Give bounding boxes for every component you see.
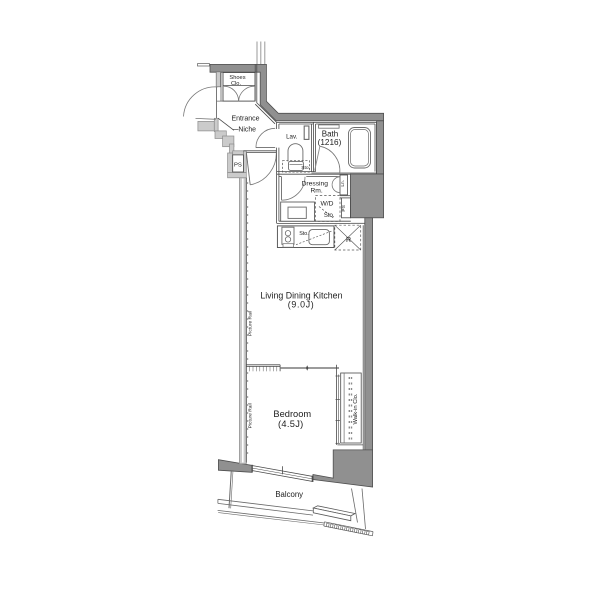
svg-text:R: R <box>346 237 351 244</box>
svg-text:(9.0J): (9.0J) <box>288 300 315 310</box>
svg-text:Niche: Niche <box>238 127 256 134</box>
svg-text:Sto.: Sto. <box>301 165 310 171</box>
svg-text:Bedroom: Bedroom <box>273 409 311 419</box>
svg-text:Picture Rail: Picture Rail <box>247 403 253 428</box>
svg-text:Lav.: Lav. <box>286 134 298 141</box>
svg-text:(1216): (1216) <box>318 138 342 147</box>
svg-text:Ln.: Ln. <box>340 180 345 187</box>
svg-text:Entrance: Entrance <box>231 115 259 122</box>
svg-text:Clo.: Clo. <box>231 81 242 87</box>
svg-text:PS: PS <box>341 204 347 211</box>
svg-text:Walk-in Clo.: Walk-in Clo. <box>353 393 359 424</box>
svg-text:Sto.: Sto. <box>324 213 335 219</box>
svg-text:Picture Rail: Picture Rail <box>247 311 253 336</box>
svg-text:Balcony: Balcony <box>275 490 303 499</box>
svg-text:PS: PS <box>234 162 242 168</box>
svg-text:(4.5J): (4.5J) <box>278 419 304 429</box>
svg-text:Rm.: Rm. <box>310 188 322 195</box>
svg-text:W/D: W/D <box>321 200 334 207</box>
svg-text:Sto.: Sto. <box>299 231 309 237</box>
